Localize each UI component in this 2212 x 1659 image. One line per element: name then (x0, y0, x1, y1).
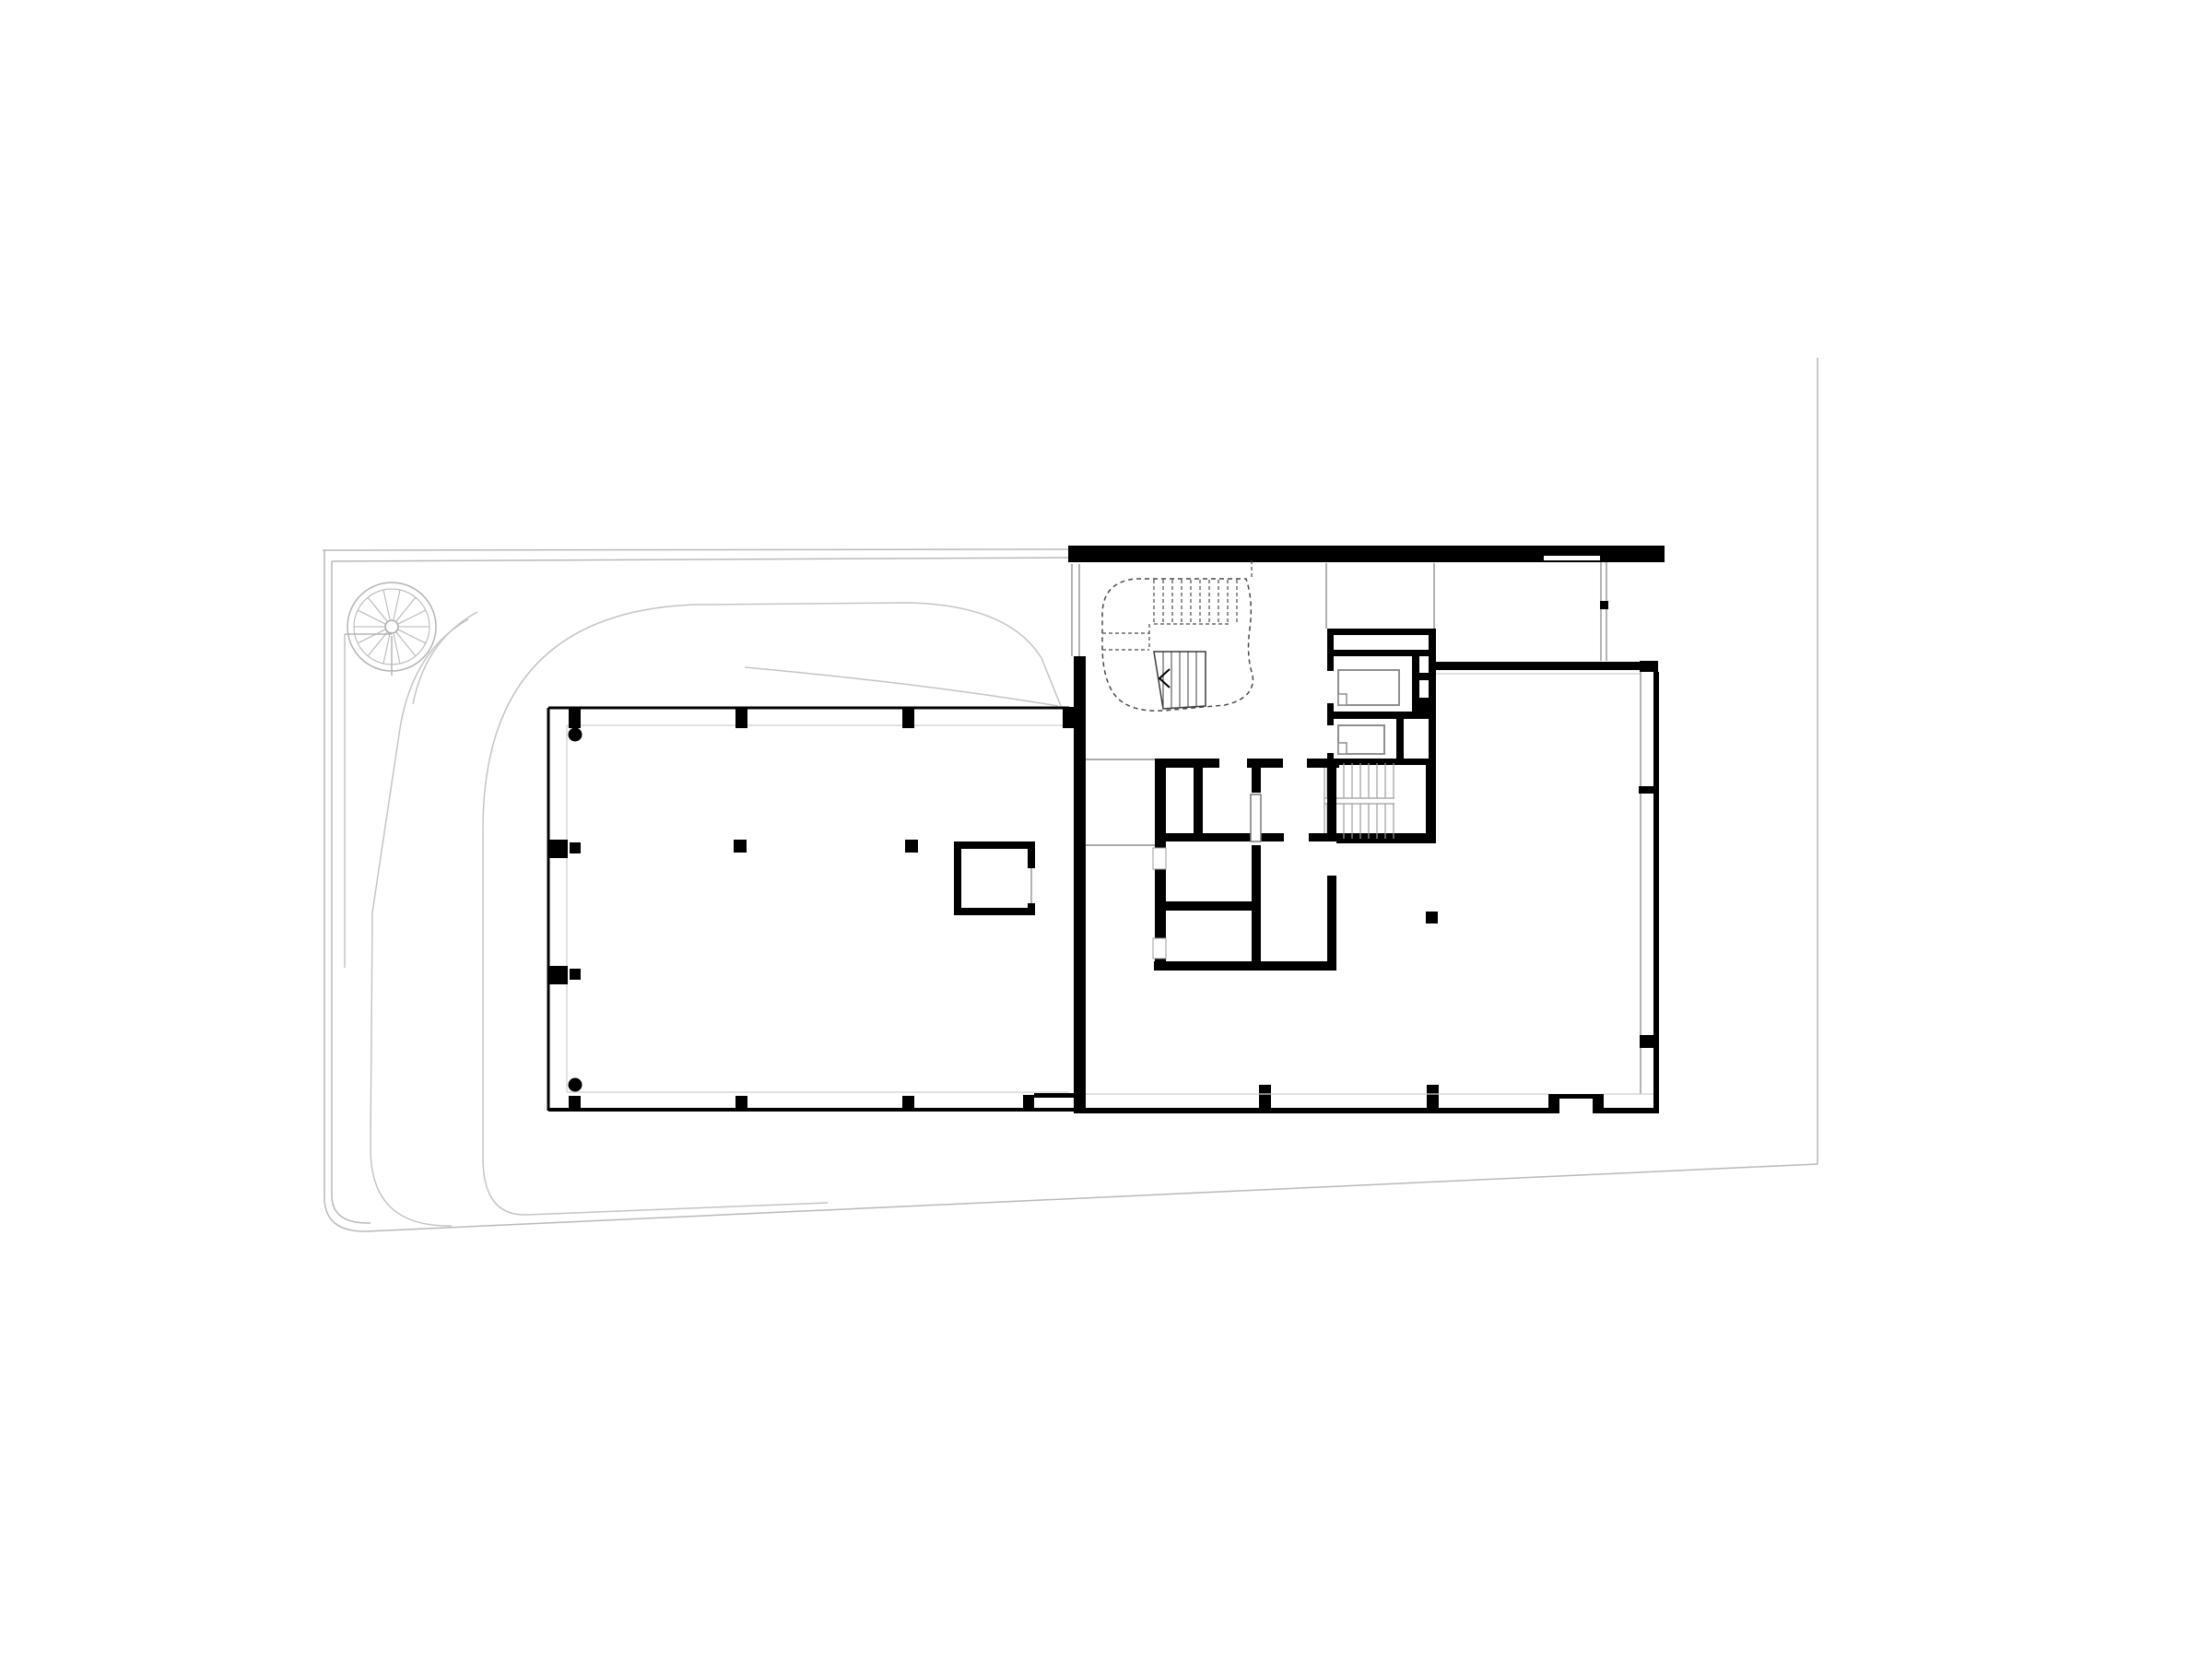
wall-pier (547, 840, 568, 858)
core-mid-wall (1334, 712, 1435, 719)
spiral-stair-item-7 (383, 634, 390, 664)
spiral-stair-item-14 (394, 590, 400, 619)
shaft-niche (1412, 698, 1436, 712)
spiral-stair-item-11 (358, 610, 385, 624)
site-roadway (345, 603, 1061, 1226)
wall-pier (547, 966, 568, 984)
right-room-top-corner (1640, 661, 1658, 672)
spiral-stair-item-4 (398, 629, 426, 643)
floor-plan-svg (0, 0, 2212, 1659)
party-wall (1074, 656, 1086, 1113)
terrace (1326, 562, 1608, 661)
party-wall-lobby (1072, 564, 1086, 1113)
elev2-divider (1396, 719, 1404, 759)
shaft-niche (1412, 673, 1436, 680)
bottom-wall (1604, 1108, 1659, 1113)
shaft-room (958, 845, 1031, 912)
column (902, 1096, 914, 1111)
north-wall-slit (1544, 556, 1600, 560)
interior-column (1426, 912, 1438, 924)
stair-right-wall (1426, 765, 1436, 843)
spiral-newel (385, 620, 398, 633)
wc-mid-wall (1166, 833, 1284, 841)
hall-left (547, 707, 1077, 1111)
site-boundary-top-outer (323, 549, 1068, 550)
elevator-car-1 (1338, 670, 1399, 705)
column (1427, 1085, 1439, 1111)
spiral-stair (345, 582, 436, 676)
column (735, 1096, 747, 1111)
wc-bottom-wall (1154, 961, 1336, 971)
dashed-existing-stair (1102, 560, 1253, 711)
interior-column (734, 840, 747, 853)
road-outer-edge (371, 619, 468, 1226)
wc-right-wall (1327, 876, 1336, 961)
room-divider (1161, 901, 1252, 911)
duct-shaft (1251, 794, 1261, 841)
core-right-wall (1429, 629, 1436, 765)
stair-bottom-wall (1336, 833, 1436, 843)
round-column (569, 728, 582, 742)
floor-plan-sheet (0, 0, 2212, 1659)
spiral-stair-item-13 (383, 590, 390, 619)
spiral-stair-item-12 (368, 597, 387, 621)
spiral-stair-item-9 (358, 629, 385, 643)
entry-niche-head (1548, 1094, 1604, 1099)
entry-niche-head (1034, 1093, 1075, 1098)
elevator-core (1327, 629, 1436, 765)
site-boundary-bottom (324, 1164, 1818, 1231)
road-inner-edge-bottom (483, 1158, 828, 1215)
wc-cluster (1086, 759, 1339, 971)
wc-window-slot (1153, 938, 1166, 959)
entry-niche-jamb (1023, 1095, 1034, 1111)
column (569, 708, 581, 728)
wc-top-wall (1155, 759, 1219, 768)
bottom-wall (1081, 1108, 1548, 1113)
core-left-wall (1327, 703, 1334, 725)
column (569, 1096, 581, 1111)
terrace-mullion (1600, 601, 1608, 609)
column (1259, 1085, 1271, 1111)
core-top-wall (1327, 629, 1435, 635)
column (902, 708, 914, 728)
site-boundary-bottom-inner (332, 1195, 371, 1223)
interior-column (905, 840, 918, 853)
pier-pad (570, 842, 581, 853)
wc-right-wall (1327, 759, 1336, 841)
core-left-wall (1327, 629, 1334, 671)
wc-divider-low (1252, 845, 1261, 961)
column (735, 708, 747, 728)
elevator-car-2-door (1338, 743, 1347, 754)
duct-block (1252, 768, 1261, 793)
wc-divider (1194, 768, 1203, 841)
spiral-stair-item-5 (396, 632, 416, 656)
core-duct-wall (1327, 650, 1435, 656)
right-room-top-wall (1435, 662, 1640, 670)
right-wall-mullion (1639, 786, 1659, 794)
wc-top-wall (1247, 759, 1283, 768)
main-stair (1324, 763, 1436, 843)
dashed-outline (1102, 579, 1253, 711)
elevator-car-1-door (1338, 694, 1347, 705)
top-bar-wall (1068, 546, 1665, 562)
spiral-stair-item-8 (368, 632, 387, 656)
wc-window-slot (1153, 848, 1166, 869)
garden-arc (745, 667, 1058, 706)
round-column (569, 1078, 582, 1092)
direction-arrow (1159, 669, 1170, 688)
spiral-stair-item-16 (398, 610, 426, 624)
spiral-stair-item-15 (396, 597, 416, 621)
right-wall-mullion (1640, 1035, 1659, 1048)
site-boundary-top-inner (332, 558, 1068, 561)
spiral-stair-item-6 (394, 634, 400, 664)
pier-pad (570, 969, 581, 980)
